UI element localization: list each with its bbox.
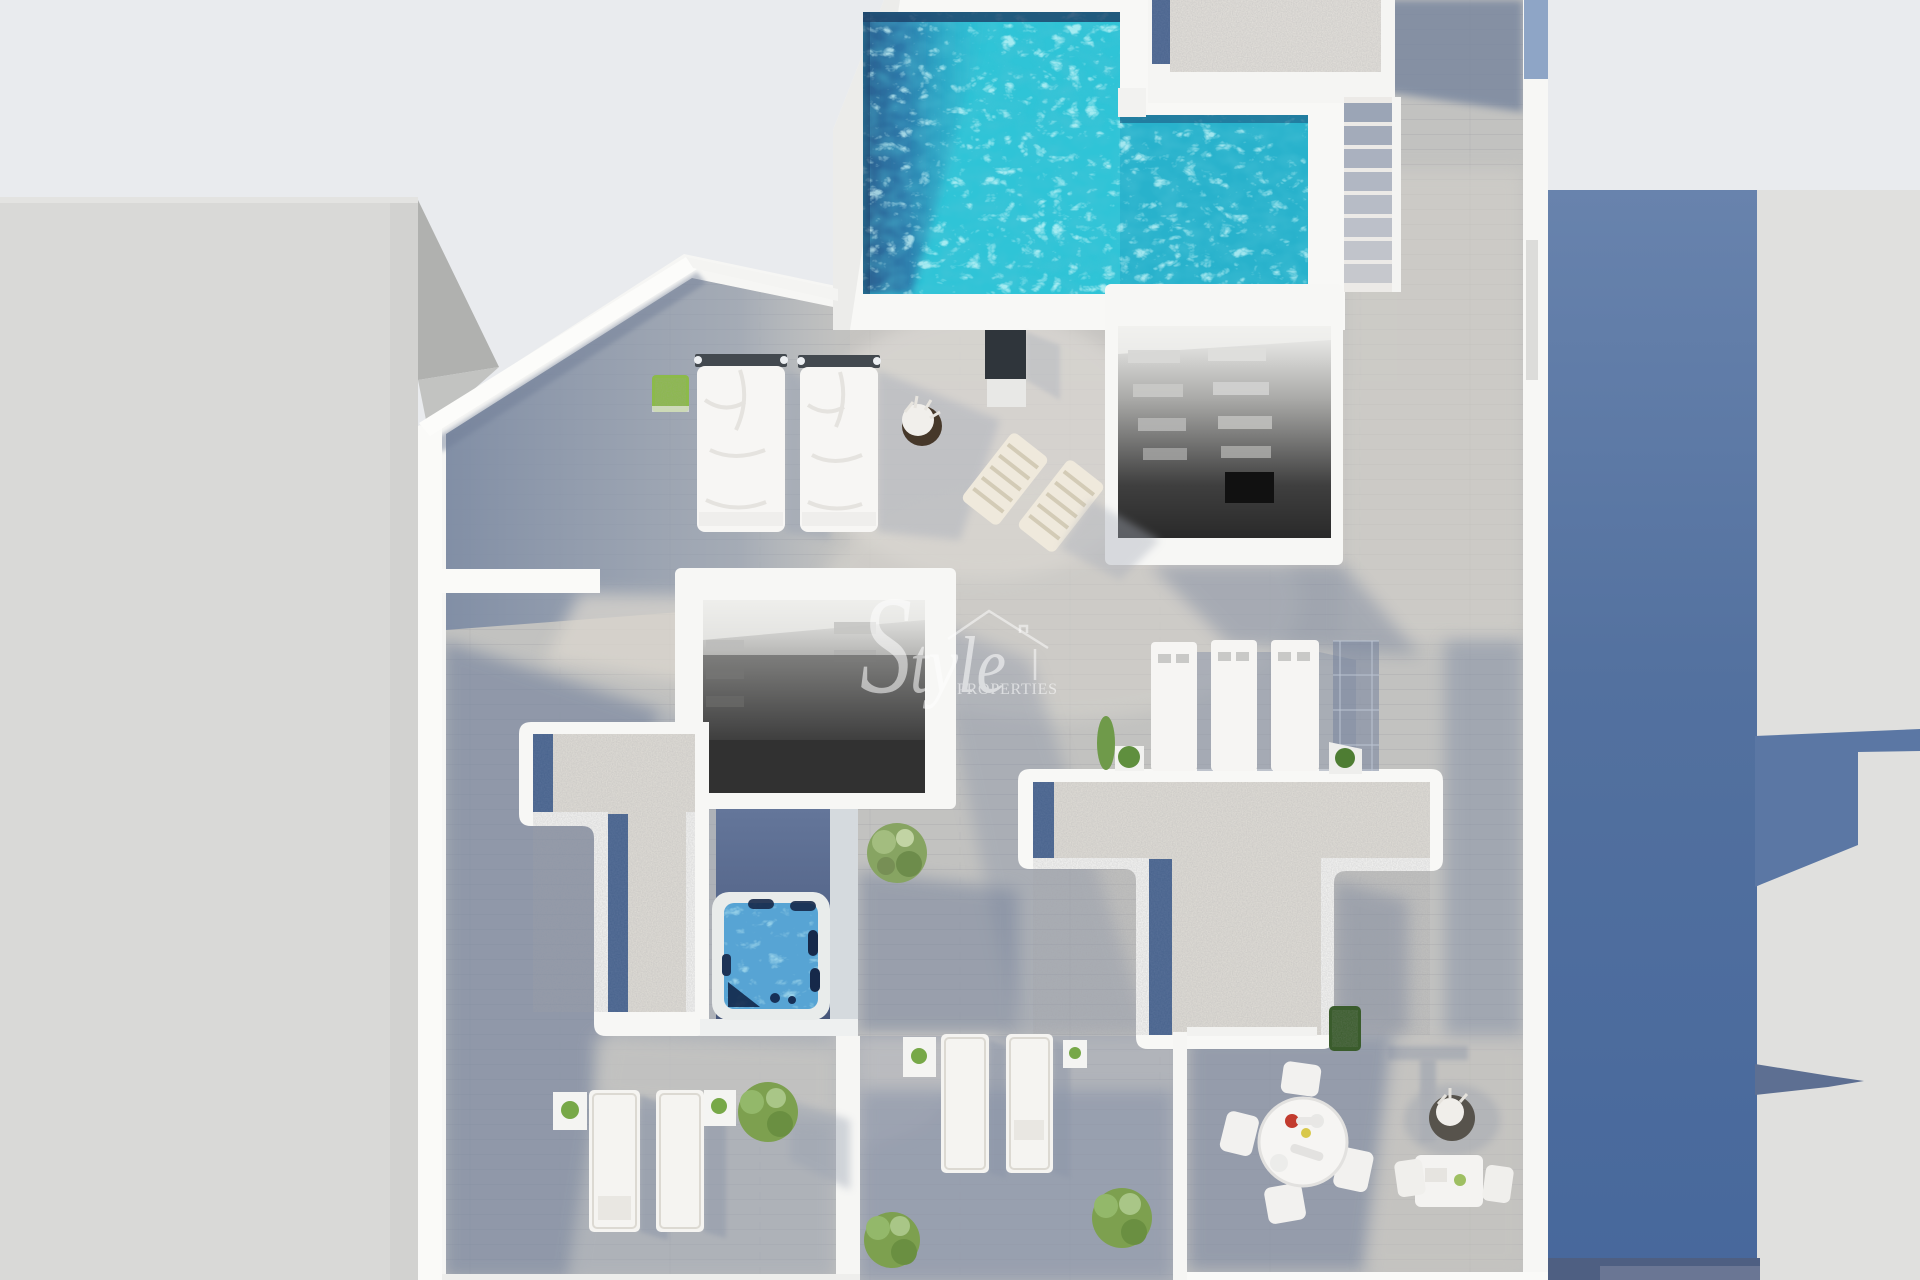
svg-text:PROPERTIES: PROPERTIES xyxy=(957,681,1057,698)
svg-text:S: S xyxy=(860,568,912,723)
